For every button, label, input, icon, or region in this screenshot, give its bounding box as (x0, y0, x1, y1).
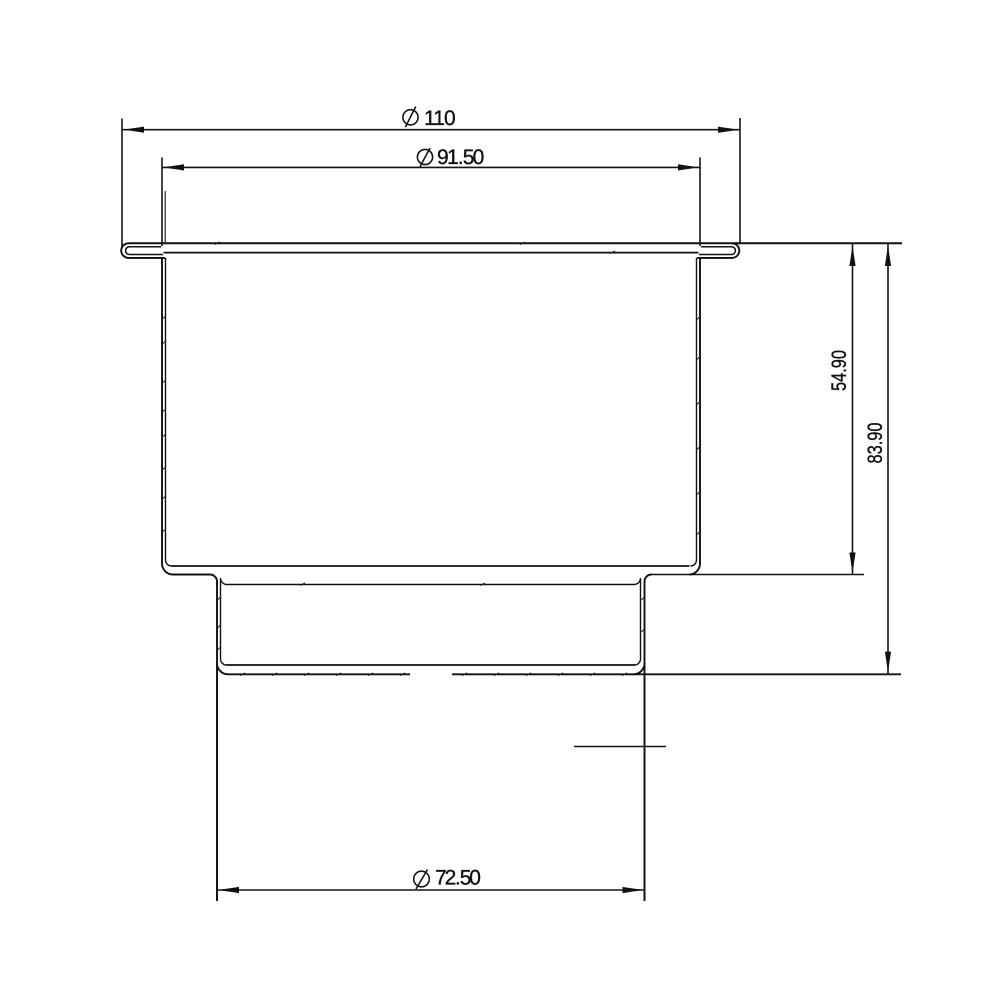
svg-text:72.50: 72.50 (435, 867, 480, 890)
svg-text:83.90: 83.90 (863, 423, 886, 464)
svg-text:91.50: 91.50 (437, 146, 484, 169)
svg-text:110: 110 (424, 107, 455, 130)
svg-text:54.90: 54.90 (827, 350, 850, 391)
